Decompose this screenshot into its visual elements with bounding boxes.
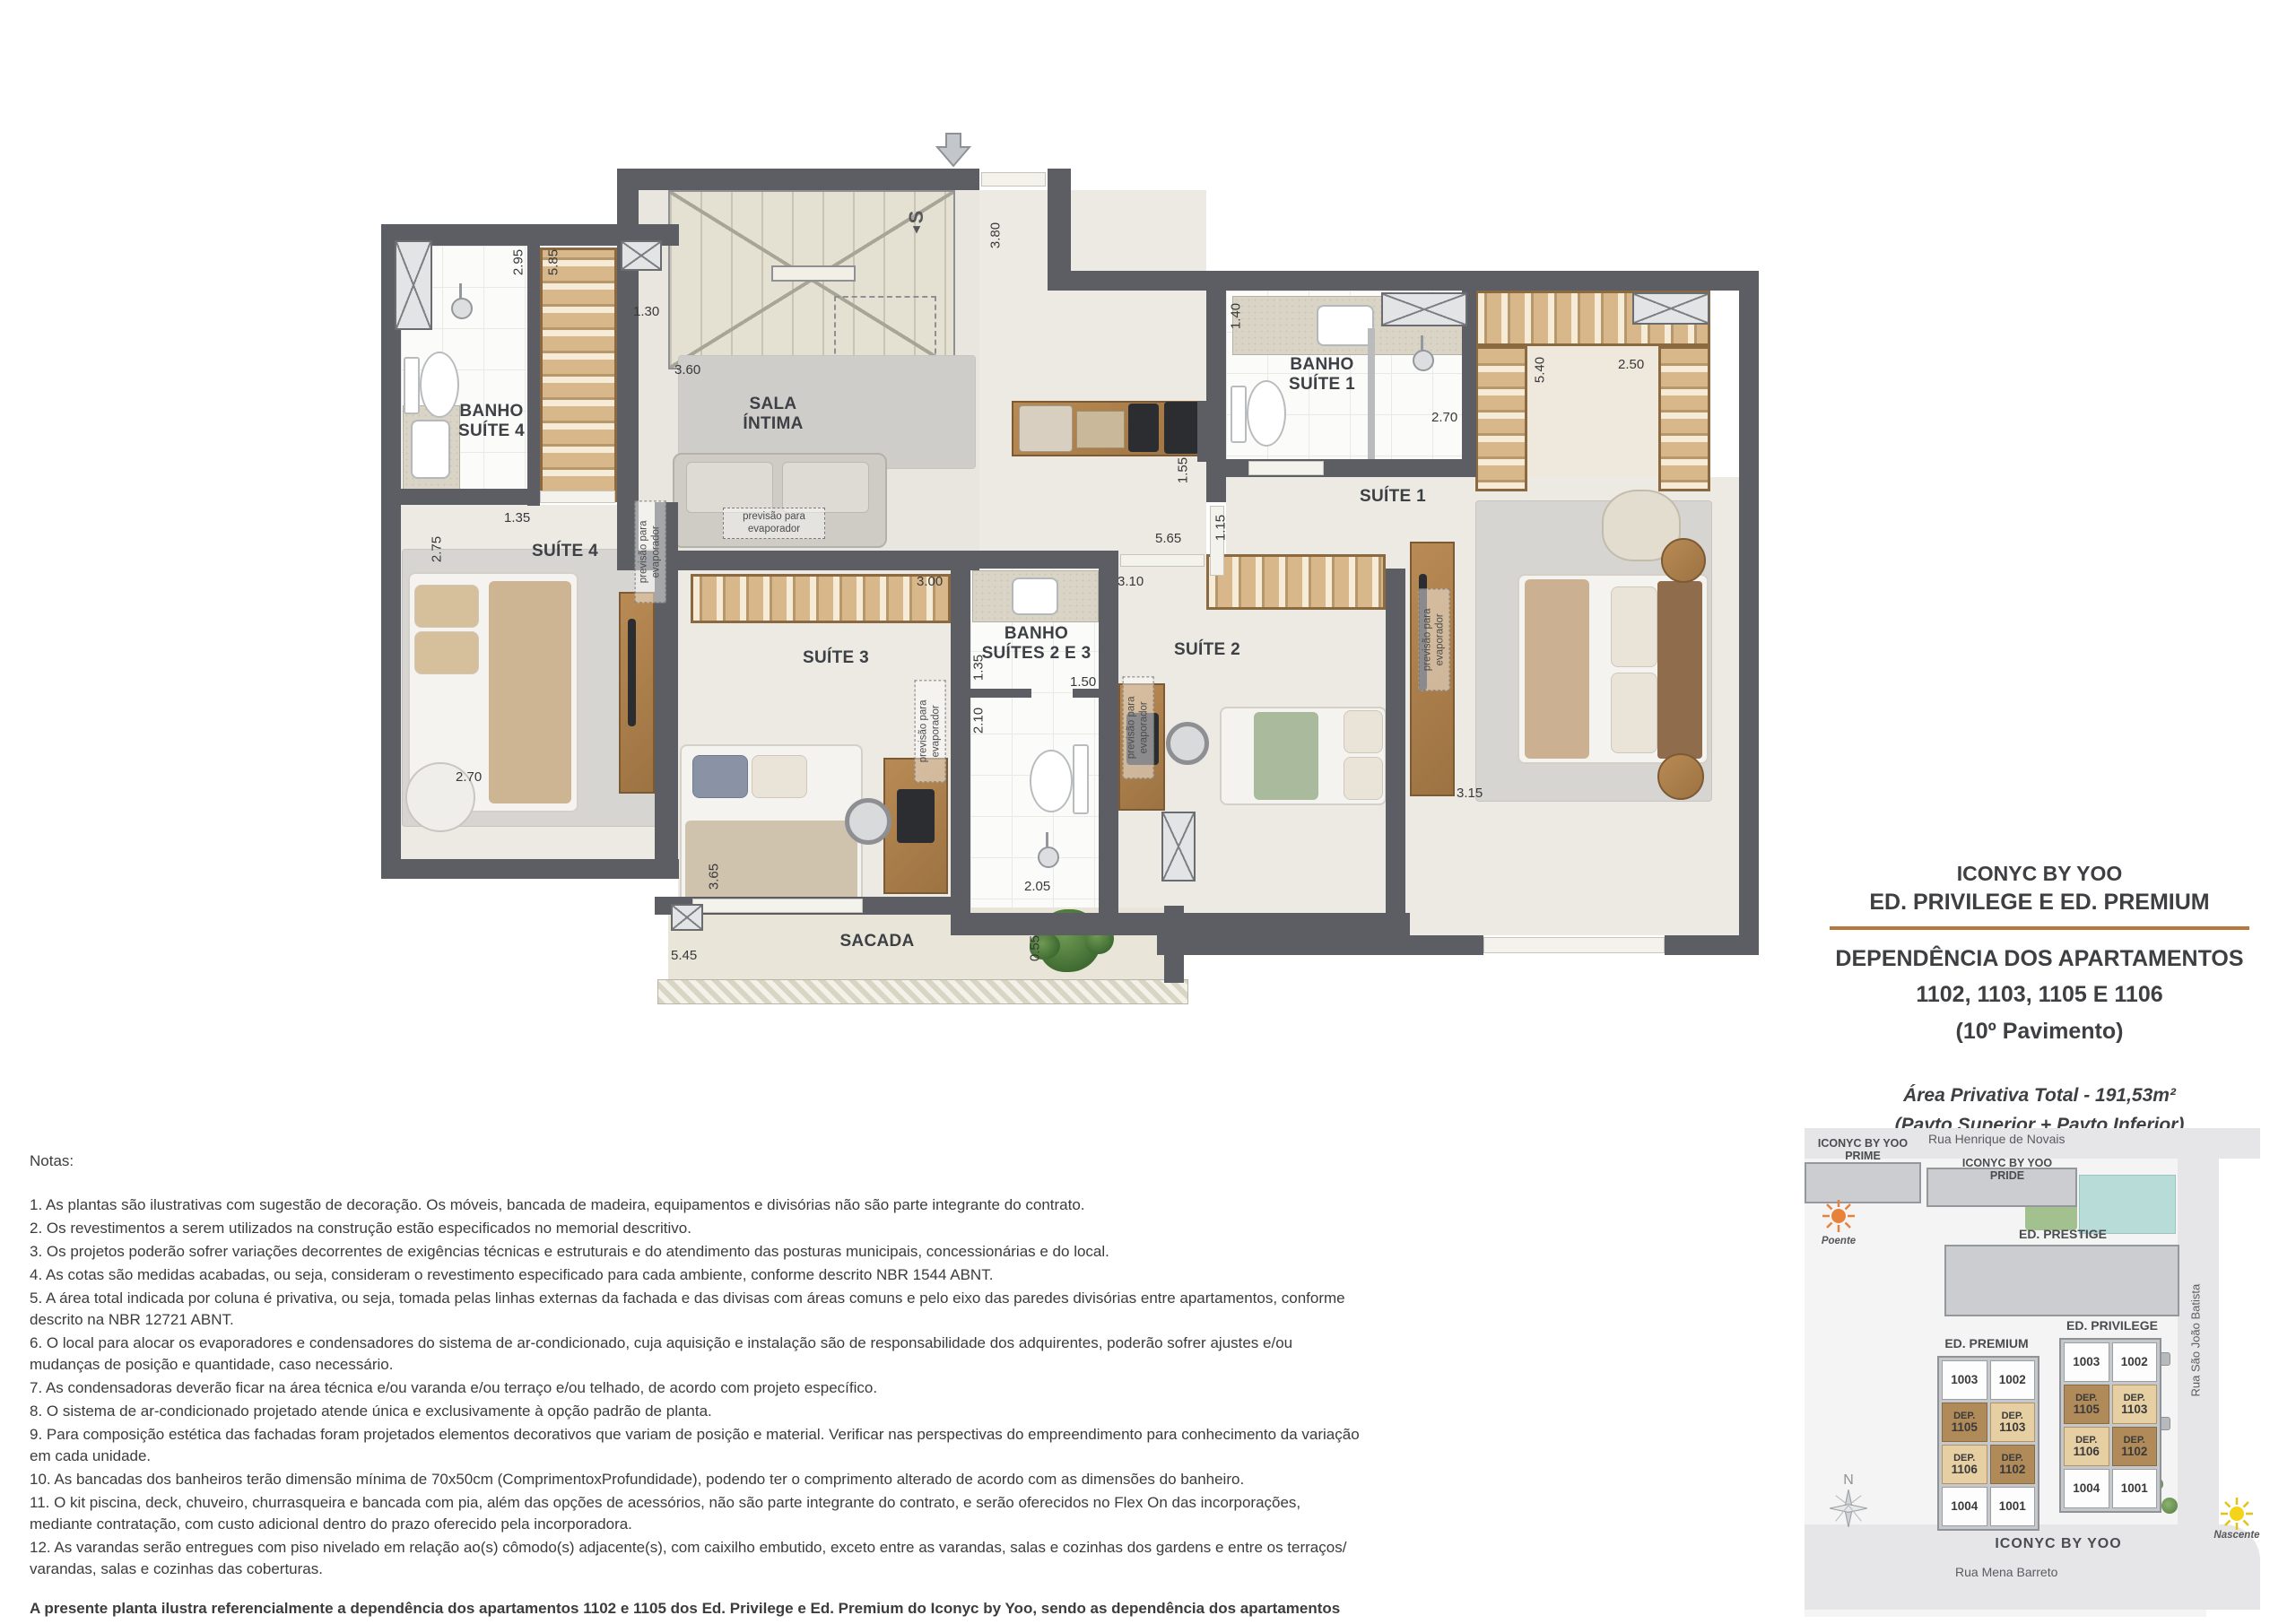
suite2-chair: [1166, 722, 1209, 765]
floor-number: (10º Pavimento): [1830, 1013, 2249, 1050]
tower-row: 1003 1002: [2064, 1342, 2157, 1382]
dim-label: 1.50: [1070, 674, 1096, 690]
unit-cell: 1004: [2064, 1469, 2109, 1508]
private-area: Área Privativa Total - 191,53m²: [1830, 1081, 2249, 1111]
evaporator-note: previsão para evaporador: [723, 508, 825, 539]
building-label-pride: ICONYC BY YOO PRIDE: [1944, 1157, 2070, 1182]
unit-number: 1103: [2121, 1403, 2147, 1417]
suite2-pillow: [1344, 757, 1383, 800]
evaporator-note: previsão para evaporador: [1123, 676, 1154, 778]
dim-label: 3.10: [1118, 574, 1144, 589]
title-block: ICONYC BY YOO ED. PRIVILEGE E ED. PREMIU…: [1830, 859, 2249, 1140]
wall: [951, 551, 1118, 569]
wall: [617, 169, 979, 190]
dim-label: 0.55: [1028, 929, 1043, 968]
unit-cell: 1004: [1942, 1487, 1987, 1526]
wall: [1206, 271, 1226, 502]
note-item: 5. A área total indicada por coluna é pr…: [30, 1288, 1366, 1331]
closet-suite1-right: [1658, 346, 1710, 491]
street-name-top: Rua Henrique de Novais: [1928, 1132, 2066, 1146]
evaporator-note: previsão para evaporador: [915, 680, 946, 782]
suite2-door: [1120, 554, 1205, 567]
sun-poente-label: Poente: [1803, 1236, 1874, 1246]
unit-number: 1102: [2121, 1446, 2147, 1459]
suite4-tv: [628, 619, 636, 726]
banho23-toilet: [1073, 744, 1089, 814]
shaft: [1381, 292, 1467, 326]
tree-icon: [2161, 1498, 2178, 1514]
suite2-blanket: [1254, 712, 1318, 800]
evaporator-note: previsão para evaporador: [635, 500, 666, 603]
unit-number: 1001: [2121, 1482, 2148, 1496]
suite3-pillow: [752, 755, 807, 798]
banho23-sink: [1012, 578, 1058, 615]
building-label-premium: ED. PREMIUM: [1928, 1336, 2045, 1350]
sun-poente-icon: [1821, 1198, 1857, 1238]
room-label-suite3: SUÍTE 3: [764, 648, 908, 668]
floorplan-page: ◄S: [0, 0, 2296, 1624]
banho1-divider: [1368, 328, 1375, 477]
room-label-banho-suite1: BANHO SUÍTE 1: [1250, 355, 1394, 395]
dep-label: DEP.: [2002, 1411, 2023, 1421]
dep-label: DEP.: [1953, 1453, 1975, 1463]
stair-direction: ◄S: [905, 204, 928, 243]
dim-label: 2.70: [456, 769, 482, 785]
wall: [1197, 401, 1221, 462]
note-item: 1. As plantas são ilustrativas com suges…: [30, 1194, 1366, 1216]
dep-label: DEP.: [2075, 1393, 2097, 1403]
unit-number: 1106: [2074, 1446, 2100, 1459]
wall: [1164, 906, 1184, 983]
tower-row: DEP.1105 DEP.1103: [1942, 1403, 2035, 1442]
tower-row: 1003 1002: [1942, 1360, 2035, 1400]
dim-label: 2.05: [1024, 879, 1050, 894]
unit-cell: 1003: [1942, 1360, 1987, 1400]
suite1-pillow: [1611, 673, 1657, 753]
suite4-blanket: [489, 581, 571, 803]
unit-cell-dep: DEP.1105: [1942, 1403, 1987, 1442]
building-prestige: [1944, 1245, 2179, 1316]
wall: [951, 569, 970, 915]
suitcase: [1164, 402, 1200, 454]
unit-number: 1004: [1951, 1500, 1978, 1514]
tower-row: 1004 1001: [2064, 1469, 2157, 1508]
dim-label: 3.00: [917, 574, 943, 589]
stair-landing-rail: [771, 265, 856, 282]
dependency-title: DEPENDÊNCIA DOS APARTAMENTOS: [1830, 941, 2249, 977]
shaft: [1161, 812, 1196, 881]
room-label-sacada: SACADA: [805, 932, 949, 951]
dep-label: DEP.: [2075, 1435, 2097, 1446]
suite3-balcony-door: [692, 899, 863, 913]
banho1-sink: [1317, 305, 1374, 346]
dim-label: 2.75: [430, 530, 445, 569]
dim-label: 1.15: [1213, 508, 1229, 548]
notes-footer: A presente planta ilustra referencialmen…: [30, 1598, 1366, 1624]
dim-label: 2.10: [971, 701, 987, 741]
banho4-toilet: [404, 357, 420, 414]
dep-label: DEP.: [2002, 1453, 2023, 1463]
sofa-cushion: [782, 462, 869, 513]
tower-row: DEP.1106 DEP.1102: [1942, 1445, 2035, 1484]
dim-label: 1.30: [633, 304, 659, 319]
unit-cell-dep: DEP.1106: [2064, 1427, 2109, 1466]
banho4-shower-icon: [451, 298, 473, 319]
unit-number: 1003: [1951, 1374, 1978, 1387]
room-label-suite2: SUÍTE 2: [1135, 640, 1279, 660]
room-label-banho-suite4: BANHO SUÍTE 4: [420, 402, 563, 442]
evaporator-note: previsão para evaporador: [1419, 588, 1450, 690]
unit-cell: 1001: [2112, 1469, 2158, 1508]
wall: [1099, 569, 1118, 915]
suite3-laptop: [897, 789, 935, 843]
tower-row: DEP.1105 DEP.1103: [2064, 1385, 2157, 1424]
sideboard-tray: [1076, 411, 1125, 448]
sun-nascente-label: Nascente: [2201, 1530, 2273, 1541]
suite4-pillow: [414, 631, 479, 674]
ed-premium-tower: 1003 1002 DEP.1105 DEP.1103 DEP.1106 DEP…: [1937, 1356, 2039, 1531]
banho23-toilet-bowl: [1030, 750, 1073, 812]
wall: [1386, 569, 1405, 915]
wall: [1048, 271, 1759, 291]
building-label-prime: ICONYC BY YOO PRIME: [1805, 1137, 1921, 1162]
wall: [1665, 935, 1759, 955]
wall: [381, 859, 679, 879]
unit-number: 1105: [1952, 1421, 1978, 1435]
unit-cell-dep: DEP.1105: [2064, 1385, 2109, 1424]
suite1-balcony-door: [1483, 937, 1665, 953]
unit-number: 1001: [1999, 1500, 2026, 1514]
dep-label: DEP.: [1953, 1411, 1975, 1421]
shaft: [1632, 292, 1709, 325]
wall: [1157, 935, 1483, 955]
closet-suite4: [540, 248, 617, 502]
sofa-cushion: [686, 462, 773, 513]
unit-cell: 1001: [1990, 1487, 2036, 1526]
wall: [527, 246, 540, 506]
unit-number: 1002: [2121, 1356, 2148, 1369]
suite2-pillow: [1344, 710, 1383, 753]
stair-up-arrow-icon: ◄: [909, 223, 923, 236]
note-item: 12. As varandas serão entregues com piso…: [30, 1537, 1366, 1580]
unit-cell: 1002: [1990, 1360, 2036, 1400]
tower-row: 1004 1001: [1942, 1487, 2035, 1526]
dim-label: 2.70: [1431, 410, 1457, 425]
banho1-shower-icon: [1413, 350, 1434, 371]
unit-number: 1102: [1999, 1463, 2025, 1477]
banho1-toilet: [1231, 386, 1247, 443]
unit-cell-dep: DEP.1103: [2112, 1385, 2158, 1424]
suite1-runner: [1657, 581, 1702, 759]
closet-suite3: [691, 574, 951, 623]
note-item: 10. As bancadas dos banheiros terão dime…: [30, 1469, 1366, 1490]
dim-label: 5.40: [1533, 351, 1548, 390]
entry-arrow-icon: [933, 131, 974, 169]
note-item: 9. Para composição estética das fachadas…: [30, 1424, 1366, 1467]
note-item: 8. O sistema de ar-condicionado projetad…: [30, 1401, 1366, 1422]
suitcase: [1128, 404, 1159, 452]
unit-number: 1003: [2073, 1356, 2100, 1369]
dim-label: 3.60: [674, 362, 700, 378]
unit-number: 1103: [1999, 1421, 2025, 1435]
wall: [1739, 271, 1759, 955]
note-item: 7. As condensadoras deverão ficar na áre…: [30, 1377, 1366, 1399]
banho1-door: [1248, 461, 1324, 475]
note-item: 4. As cotas são medidas acabadas, ou sej…: [30, 1264, 1366, 1286]
notes-section: Notas: 1. As plantas são ilustrativas co…: [30, 1151, 1366, 1624]
site-map: Rua Henrique de Novais Rua São João Bati…: [1794, 1121, 2296, 1624]
project-title: ICONYC BY YOO: [1830, 859, 2249, 888]
wall: [401, 489, 540, 505]
note-item: 6. O local para alocar os evaporadores e…: [30, 1333, 1366, 1376]
complex-label: ICONYC BY YOO: [1982, 1536, 2135, 1552]
street-name-bottom: Rua Mena Barreto: [1955, 1565, 2057, 1579]
dim-label: 5.65: [1155, 531, 1181, 546]
banho23-divider: [1073, 689, 1100, 698]
wall: [617, 551, 979, 570]
suite4-desk: [619, 592, 655, 794]
building-label-prestige: ED. PRESTIGE: [2000, 1227, 2126, 1241]
suite1-side-table: [1657, 753, 1704, 800]
pool-area: [2079, 1175, 2176, 1234]
suite1-blanket: [1525, 579, 1589, 759]
shaft: [671, 904, 703, 931]
entry-door-threshold: [981, 172, 1046, 187]
dep-label: DEP.: [2124, 1393, 2145, 1403]
room-label-sala-intima: SALA ÍNTIMA: [701, 395, 845, 435]
suite1-side-table: [1661, 538, 1706, 583]
suite4-pillow: [414, 585, 479, 628]
sacada-edge-hatch: [657, 979, 1188, 1004]
suite1-pillow: [1611, 586, 1657, 667]
unit-cell-dep: DEP.1102: [2112, 1427, 2158, 1466]
dim-label: 1.55: [1176, 451, 1191, 491]
tower-row: DEP.1106 DEP.1102: [2064, 1427, 2157, 1466]
project-buildings: ED. PRIVILEGE E ED. PREMIUM: [1830, 888, 2249, 917]
dim-label: 5.85: [546, 243, 561, 282]
dim-label: 1.35: [504, 510, 530, 525]
stair-direction-label: S: [905, 211, 927, 224]
unit-number: 1106: [1952, 1463, 1978, 1477]
apartments-numbers: 1102, 1103, 1105 E 1106: [1830, 977, 2249, 1013]
closet-suite1-left: [1475, 346, 1527, 491]
dim-label: 5.45: [671, 948, 697, 963]
dim-label: 3.15: [1457, 786, 1483, 801]
building-label-privilege: ED. PRIVILEGE: [2054, 1318, 2170, 1333]
compass-rose-icon: [1829, 1489, 1868, 1528]
banho23-divider: [970, 689, 1031, 698]
dim-label: 3.65: [707, 857, 722, 897]
ed-privilege-tower: 1003 1002 DEP.1105 DEP.1103 DEP.1106 DEP…: [2059, 1338, 2161, 1513]
dep-label: DEP.: [2124, 1435, 2145, 1446]
banho23-shower-icon: [1038, 847, 1059, 868]
notes-heading: Notas:: [30, 1151, 1366, 1172]
compass: N: [1826, 1472, 1871, 1533]
unit-number: 1105: [2074, 1403, 2100, 1417]
dim-label: 2.50: [1618, 357, 1644, 372]
unit-cell-dep: DEP.1103: [1990, 1403, 2036, 1442]
sideboard-basket: [1019, 405, 1073, 452]
note-item: 2. Os revestimentos a serem utilizados n…: [30, 1218, 1366, 1239]
street-name-right: Rua São João Batista: [2189, 1272, 2203, 1397]
compass-n-label: N: [1826, 1472, 1871, 1489]
unit-cell: 1003: [2064, 1342, 2109, 1382]
unit-cell: 1002: [2112, 1342, 2158, 1382]
shaft: [621, 240, 662, 271]
dim-label: 1.40: [1229, 297, 1244, 336]
shaft: [395, 240, 432, 330]
note-item: 3. Os projetos poderão sofrer variações …: [30, 1241, 1366, 1263]
closet-suite2: [1206, 554, 1386, 610]
unit-cell-dep: DEP.1106: [1942, 1445, 1987, 1484]
dim-label: 1.35: [971, 648, 987, 688]
dim-label: 3.80: [988, 216, 1004, 256]
unit-number: 1002: [1999, 1374, 2026, 1387]
unit-number: 1004: [2073, 1482, 2100, 1496]
dim-label: 2.95: [511, 243, 526, 282]
banho4-door: [540, 491, 615, 503]
note-item: 11. O kit piscina, deck, chuveiro, churr…: [30, 1492, 1366, 1535]
hall-floor: [979, 190, 1206, 576]
unit-cell-dep: DEP.1102: [1990, 1445, 2036, 1484]
suite3-chair: [845, 798, 891, 845]
room-label-suite4: SUÍTE 4: [493, 542, 637, 561]
suite3-pillow: [692, 755, 748, 798]
title-rule: [1830, 926, 2249, 930]
room-label-suite1: SUÍTE 1: [1321, 487, 1465, 507]
